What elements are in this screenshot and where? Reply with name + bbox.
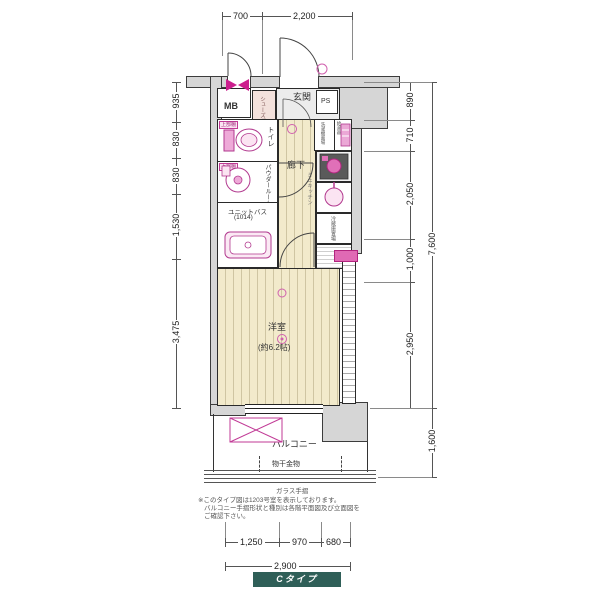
type-badge: Cタイプ <box>253 572 341 587</box>
powder-door-arc <box>279 163 313 197</box>
ext-line <box>222 20 223 56</box>
footnote-line-1: ※このタイプ図は1203号室を表示しております。 <box>198 497 340 505</box>
dim-right-2950: 2,950 <box>405 322 415 366</box>
ac-outdoor-unit <box>230 418 282 442</box>
dim-left-3475: 3,475 <box>171 310 181 354</box>
dim-tick <box>350 562 351 571</box>
dim-top-700: 700 <box>231 11 250 21</box>
dim-right-2050: 2,050 <box>405 172 415 216</box>
toilet-icon <box>224 129 262 151</box>
ext-line <box>364 239 410 240</box>
room-fixture-symbol <box>281 338 284 341</box>
dim-right-1000: 1,000 <box>405 237 415 281</box>
dim-tick <box>279 538 280 547</box>
ext-line <box>364 120 410 121</box>
dim-tick <box>225 538 226 547</box>
dim-tick <box>350 538 351 547</box>
entrance-door-arc <box>280 38 319 77</box>
stove-icon <box>320 154 348 179</box>
dim-left-830b: 830 <box>171 153 181 197</box>
floor-plan: MB シューズボックス 玄関 PS トイレ 上部棚 パウダールーム 上部棚 ユニ… <box>0 0 600 600</box>
ext-line <box>352 20 353 60</box>
water-heater-icon <box>341 124 350 146</box>
ext-line <box>378 477 432 478</box>
dim-tick <box>172 408 181 409</box>
ext-line <box>262 20 263 74</box>
room-fixture-symbol <box>278 289 286 297</box>
dim-right-1600: 1,600 <box>427 419 437 463</box>
footnote-line-3: ご確認下さい。 <box>204 513 250 521</box>
dim-tick <box>172 259 181 260</box>
kitchen-sink-icon <box>325 182 343 206</box>
interior-door-arc <box>283 99 311 127</box>
dim-left-1530: 1,530 <box>171 203 181 247</box>
dim-top-2200: 2,200 <box>291 11 318 21</box>
dim-right-7600: 7,600 <box>427 222 437 266</box>
sink-icon <box>222 166 250 192</box>
bathtub-icon <box>225 232 271 258</box>
mb-door-arc <box>228 53 251 76</box>
dim-tick <box>321 538 322 547</box>
room-door-arc <box>280 233 314 267</box>
dim-bottom-680: 680 <box>324 537 343 547</box>
hall-symbol <box>288 125 297 134</box>
dim-bottom-970: 970 <box>290 537 309 547</box>
ext-line <box>364 282 410 283</box>
dim-tick <box>225 562 226 571</box>
dim-bottom-1250: 1,250 <box>238 537 265 547</box>
ext-line <box>364 82 432 83</box>
mb-symbol <box>226 79 249 91</box>
ext-line <box>370 408 432 409</box>
dim-bottom-2900: 2,900 <box>272 561 299 571</box>
footnote-line-2: バルコニー手摺形状と種別は各階平面図及び立面図を <box>204 505 360 513</box>
ext-line <box>364 151 410 152</box>
